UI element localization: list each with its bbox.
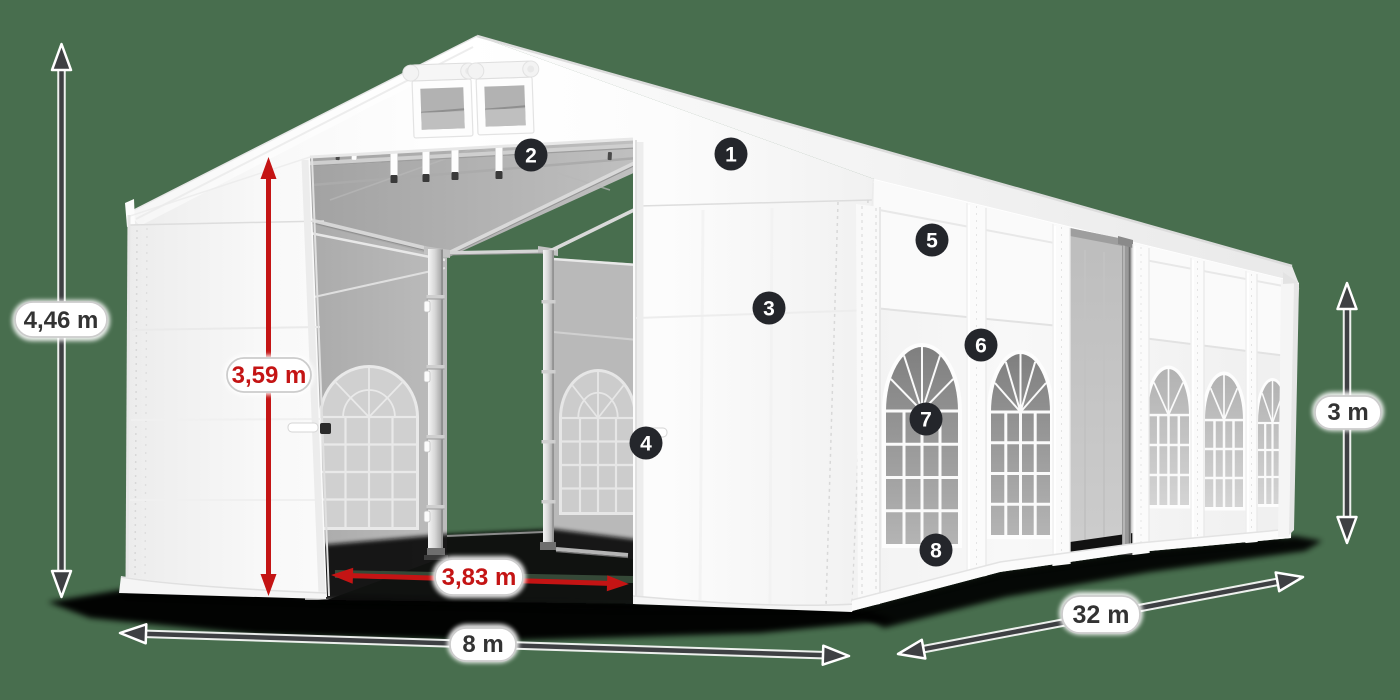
svg-text:3,59 m: 3,59 m <box>232 362 307 389</box>
svg-text:1: 1 <box>725 144 737 167</box>
svg-text:8 m: 8 m <box>462 631 503 658</box>
svg-text:3,83 m: 3,83 m <box>442 564 517 591</box>
svg-text:8: 8 <box>930 540 942 563</box>
svg-text:5: 5 <box>926 230 938 253</box>
svg-text:6: 6 <box>975 335 987 358</box>
svg-text:32 m: 32 m <box>1073 601 1130 629</box>
svg-text:2: 2 <box>525 145 537 168</box>
svg-text:4,46 m: 4,46 m <box>24 307 99 334</box>
svg-text:7: 7 <box>920 409 932 432</box>
svg-text:3 m: 3 m <box>1327 399 1368 426</box>
svg-text:4: 4 <box>640 433 652 456</box>
svg-text:3: 3 <box>763 298 775 321</box>
